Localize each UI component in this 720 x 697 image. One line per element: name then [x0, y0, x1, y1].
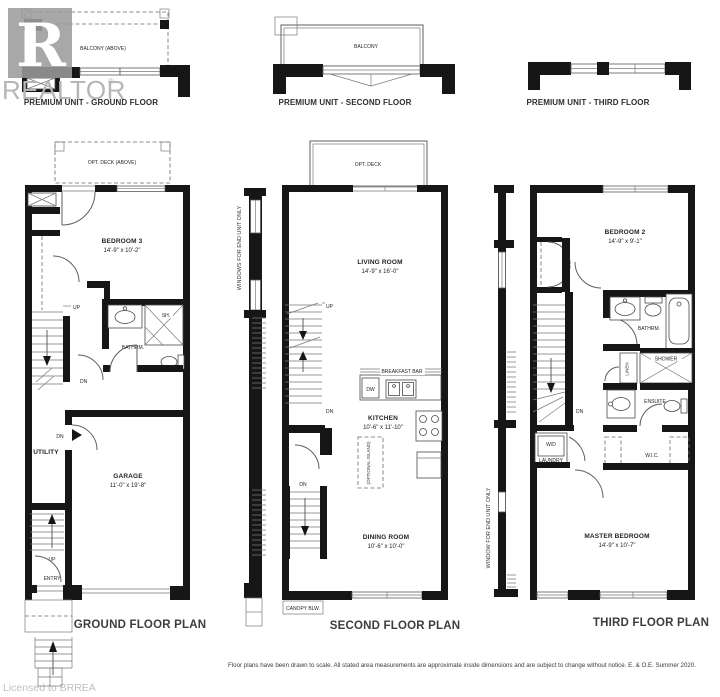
ground-entry-label: ENTRY — [44, 576, 62, 582]
second-floor-plan: OPT. DECK WINDOWS FOR END UNIT ONLY LIVI… — [237, 141, 460, 632]
third-wd-label: W/D — [546, 442, 556, 448]
sink-icon — [115, 311, 135, 324]
ground-shower-label: SH. — [162, 313, 170, 319]
exterior-stair-arrow-up — [49, 641, 57, 652]
license-watermark: Licensed to BRREA — [3, 682, 96, 694]
ground-stairs-dn-label: DN — [80, 379, 88, 385]
second-island-label: (OPTIONAL ISLAND) — [366, 441, 371, 485]
sink-icon — [615, 303, 635, 316]
third-shower-label: SHOWER — [655, 357, 678, 363]
third-master-dims: 14'-9" x 10'-7" — [599, 543, 636, 549]
ground-stairs-up-label: UP — [73, 305, 81, 311]
mini-third-title: PREMIUM UNIT - THIRD FLOOR — [526, 98, 649, 107]
second-floor-title: SECOND FLOOR PLAN — [330, 620, 461, 632]
ground-bedroom3-label: BEDROOM 3 — [102, 238, 143, 245]
ground-utility-label: UTILITY — [33, 449, 59, 456]
sink-icon — [612, 398, 630, 411]
mini-ground-title: PREMIUM UNIT - GROUND FLOOR — [24, 98, 158, 107]
third-wic-label: W.I.C. — [645, 453, 659, 459]
ground-garage-dims: 11'-0" x 19'-8" — [110, 483, 146, 489]
floorplan-svg: Licensed to BRREA BALCONY (ABOVE) R REAL… — [0, 0, 720, 697]
ground-floor-plan: OPT. DECK (ABOVE) BEDROOM 3 14'-9" x 10'… — [25, 142, 206, 686]
stair-arrow-down-2f — [299, 331, 307, 340]
second-dining-label: DINING ROOM — [363, 534, 409, 541]
mini-plan-second: BALCONY PREMIUM UNIT - SECOND FLOOR — [273, 17, 455, 107]
second-breakfast-bar-label: BREAKFAST BAR — [381, 369, 422, 375]
second-living-label: LIVING ROOM — [357, 259, 402, 266]
mini-plan-third: PREMIUM UNIT - THIRD FLOOR — [526, 62, 691, 107]
stove-icon — [416, 411, 442, 441]
ground-utility-dn-label: DN — [56, 434, 64, 440]
second-stairs-dn-label: DN — [326, 409, 334, 415]
stair-arrow-down — [43, 356, 51, 366]
second-kitchen-dims: 10'-6" x 11'-10" — [363, 425, 403, 431]
third-floor-title: THIRD FLOOR PLAN — [593, 617, 709, 629]
third-side-note: WINDOW FOR END UNIT ONLY — [486, 487, 492, 568]
mini-second-balcony-label: BALCONY — [354, 44, 379, 50]
entry-stair-arrow-up — [48, 514, 56, 524]
third-bedroom2-label: BEDROOM 2 — [605, 229, 646, 236]
third-master-label: MASTER BEDROOM — [584, 533, 649, 540]
toilet-icon — [645, 304, 661, 316]
third-floor-plan: WINDOW FOR END UNIT ONLY BEDROOM 2 14'-9… — [486, 185, 709, 629]
third-ensuite-label: ENSUITE — [644, 399, 666, 405]
faucet-icon — [623, 299, 626, 302]
second-dining-dims: 10'-6" x 10'-0" — [368, 544, 405, 550]
faucet-icon — [123, 307, 126, 310]
stair-arrow-down-3f — [547, 383, 555, 393]
floorplan-sheet: Licensed to BRREA BALCONY (ABOVE) R REAL… — [0, 0, 720, 697]
disclaimer-text: Floor plans have been drawn to scale. Al… — [228, 662, 696, 669]
stair-arrow-down-canopy — [301, 526, 309, 536]
realtor-logo: R REALTOR ® — [2, 8, 126, 105]
third-bathroom-label: BATHRM. — [638, 326, 660, 332]
stair-arrow-up-2f — [299, 351, 307, 360]
second-canopy-label: CANOPY BLW. — [286, 606, 320, 612]
second-deck-label: OPT. DECK — [355, 162, 382, 168]
third-stairs-dn-label: DN — [576, 409, 584, 415]
second-lower-dn-label: DN — [299, 482, 307, 488]
ground-garage-label: GARAGE — [113, 473, 143, 480]
second-stairs-up-label: UP — [326, 304, 334, 310]
second-kitchen-label: KITCHEN — [368, 415, 398, 422]
toilet-icon — [664, 401, 680, 412]
realtor-logo-letter: R — [16, 11, 67, 81]
ground-deck-label: OPT. DECK (ABOVE) — [88, 160, 137, 166]
second-side-note: WINDOWS FOR END UNIT ONLY — [237, 205, 243, 290]
third-linen-label: LINEN — [625, 362, 630, 375]
second-living-dims: 14'-9" x 16'-0" — [362, 269, 399, 275]
third-bedroom2-dims: 14'-9" x 9'-1" — [608, 239, 642, 245]
registered-mark: ® — [108, 77, 114, 86]
garage-step-arrow — [72, 429, 82, 441]
ground-bedroom3-dims: 14'-9" x 10'-2" — [104, 248, 141, 254]
mini-second-title: PREMIUM UNIT - SECOND FLOOR — [279, 98, 412, 107]
ground-floor-title: GROUND FLOOR PLAN — [74, 619, 206, 631]
second-dw-label: DW — [366, 387, 375, 393]
mini-ground-balcony-label: BALCONY (ABOVE) — [80, 46, 126, 52]
fridge-icon — [417, 452, 441, 478]
faucet-icon — [609, 402, 613, 406]
